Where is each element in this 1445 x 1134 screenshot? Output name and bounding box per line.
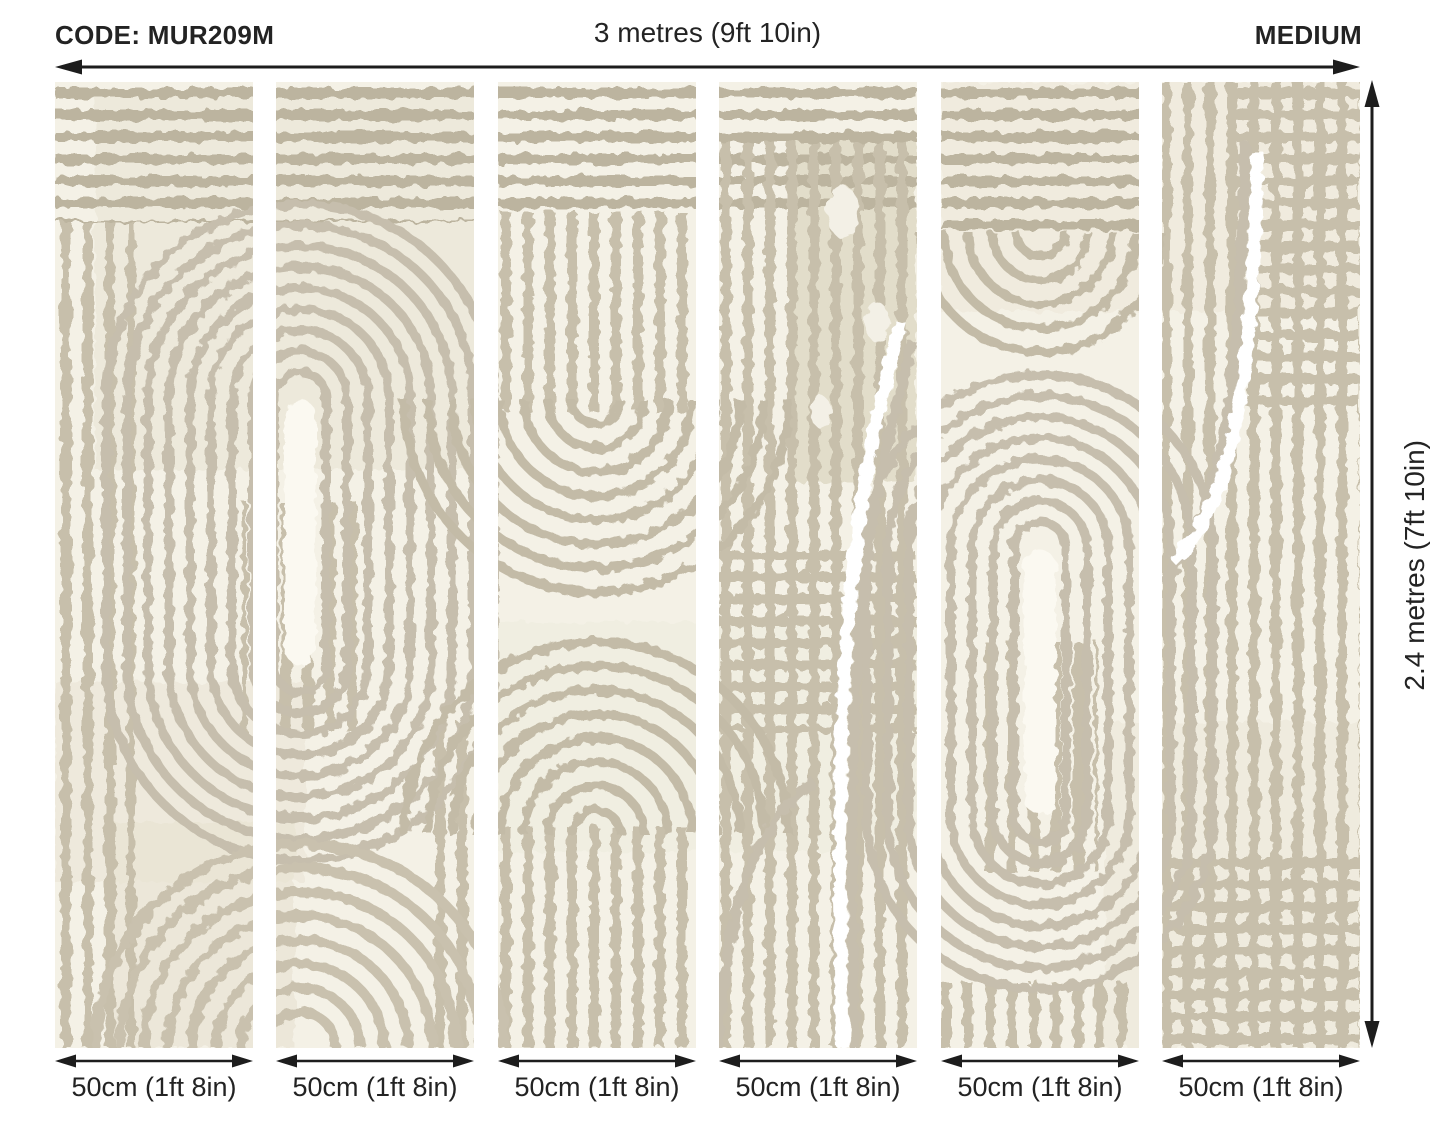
panel-width-label: 50cm (1ft 8in) bbox=[498, 1072, 696, 1103]
mural-preview bbox=[55, 82, 1360, 1048]
panel-width-label: 50cm (1ft 8in) bbox=[719, 1072, 917, 1103]
panel-width-arrow-2 bbox=[276, 1051, 474, 1071]
panel-gap bbox=[696, 82, 719, 1048]
panel-width-arrow-4 bbox=[719, 1051, 917, 1071]
panel-gap bbox=[917, 82, 941, 1048]
total-width-arrow bbox=[55, 56, 1360, 78]
panel-width-label: 50cm (1ft 8in) bbox=[1162, 1072, 1360, 1103]
total-height-label: 2.4 metres (7ft 10in) bbox=[1392, 82, 1438, 1048]
panel-width-label: 50cm (1ft 8in) bbox=[55, 1072, 253, 1103]
panel-gap bbox=[474, 82, 498, 1048]
wallpaper-dimension-diagram: CODE: MUR209M 3 metres (9ft 10in) MEDIUM… bbox=[0, 0, 1445, 1134]
total-width-label: 3 metres (9ft 10in) bbox=[55, 17, 1360, 49]
panel-gap bbox=[1139, 82, 1162, 1048]
panel-width-label: 50cm (1ft 8in) bbox=[941, 1072, 1139, 1103]
panel-width-arrow-6 bbox=[1162, 1051, 1360, 1071]
panel-width-label: 50cm (1ft 8in) bbox=[276, 1072, 474, 1103]
panel-width-arrow-5 bbox=[941, 1051, 1139, 1071]
size-badge: MEDIUM bbox=[1255, 20, 1362, 51]
panel-width-arrow-1 bbox=[55, 1051, 253, 1071]
panel-width-arrow-3 bbox=[498, 1051, 696, 1071]
panel-gap bbox=[253, 82, 276, 1048]
total-height-arrow bbox=[1360, 80, 1384, 1048]
